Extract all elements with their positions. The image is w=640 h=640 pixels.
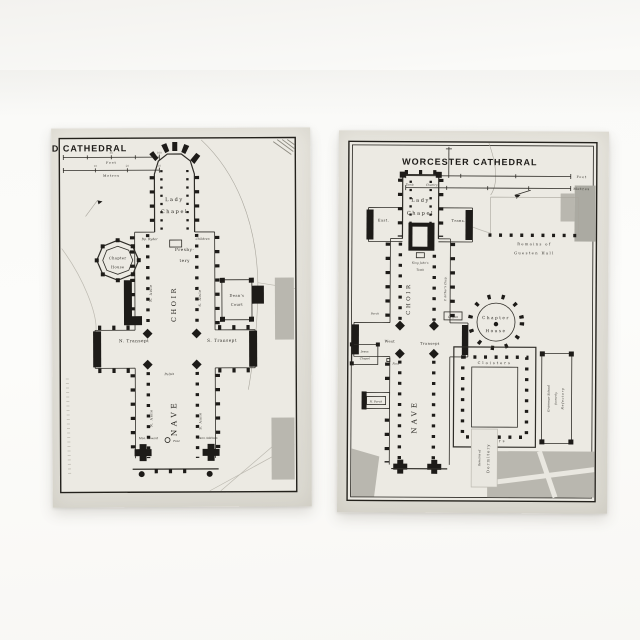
metre-tick: 30 xyxy=(158,164,162,168)
feet-tick: 100 xyxy=(157,151,162,155)
jesus-chapel-label: Jesus xyxy=(360,349,369,353)
lady-chapel-label: Lady xyxy=(411,198,430,204)
dormitory-label: Remains of xyxy=(477,449,481,467)
lady-chapel-label: Lady xyxy=(165,197,184,203)
deans-court-label: Dean's xyxy=(230,294,245,298)
feet-tick: 50 xyxy=(110,151,114,155)
pulpit-label: Pulpit xyxy=(163,372,174,376)
porch-label: Porch xyxy=(370,311,380,315)
metre-tick: 20 xyxy=(126,164,130,168)
prince-arthurs-chapel-label: P. Arthur's Chap. xyxy=(443,276,447,302)
guesten-hall-label: Guesten Hall xyxy=(514,251,555,255)
lichfield-print-sheet: LICHFIELD CATHEDRAL 50 100 Feet 10 20 30… xyxy=(51,127,312,507)
dormitory: Remains of Dormitory xyxy=(471,429,497,487)
lady-chapel-label: Chapel xyxy=(161,209,188,215)
jesus-chapel-label: Chapel xyxy=(360,356,370,360)
tomb-label: Tomb xyxy=(406,183,414,187)
chapter-house-label: Chapter xyxy=(109,256,127,260)
bp-ryder-monument-label: Bp. Ryder xyxy=(141,237,158,241)
deans-court-label: Court xyxy=(231,303,244,307)
chapter-house-label: House xyxy=(485,328,506,333)
nave-south-aisle-label: S. Aisle xyxy=(198,412,202,429)
nave-north-aisle-label: N. Aisle xyxy=(149,409,153,427)
cloisters-label: Cloisters xyxy=(478,361,512,365)
south-aisle-label: S. Aisle xyxy=(198,289,202,306)
nave-label: NAVE xyxy=(410,400,418,434)
feet-label: Feet xyxy=(576,175,587,179)
nave-label: NAVE xyxy=(169,400,178,437)
seward-monument-label: Mon. Seward xyxy=(138,436,158,440)
plan-title: WORCESTER CATHEDRAL xyxy=(402,157,537,168)
south-transept-label: S. Transept xyxy=(207,338,237,343)
high-altar xyxy=(408,223,434,251)
presbytery-label: Presby- xyxy=(175,247,195,252)
king-johns-tomb-label: King John's xyxy=(411,261,429,265)
feet-label: Feet xyxy=(106,161,117,165)
north-aisle-label: N. Aisle xyxy=(149,284,153,302)
chapter-house-label: Chapter xyxy=(482,315,510,320)
chapter-house-label: House xyxy=(111,265,125,269)
dormitory-label: Dormitory xyxy=(486,443,490,473)
north-porch-label: N. Porch xyxy=(369,399,383,403)
children-monument-label: Children xyxy=(196,237,210,241)
background-crease-shadow xyxy=(0,70,640,120)
photo-of-two-cathedral-plans: { "colors":{"background":"#fafaf8","pape… xyxy=(0,0,640,640)
north-transept-label: N. Transept xyxy=(119,338,150,343)
worcester-plan-svg: WORCESTER CATHEDRAL Feet Metres Remains … xyxy=(337,130,609,513)
choir-label: CHOIR xyxy=(170,286,178,322)
worcester-print-sheet: WORCESTER CATHEDRAL Feet Metres Remains … xyxy=(337,130,609,513)
grammar-school-label: Grammar School xyxy=(547,385,551,412)
king-johns-tomb-label: Tomb xyxy=(416,268,424,272)
dean-addison-monument-label: Dean Addison xyxy=(196,436,217,440)
guesten-hall-label: Remains of xyxy=(517,242,551,246)
presbytery-label: tery xyxy=(179,258,190,263)
lichfield-plan-svg: LICHFIELD CATHEDRAL 50 100 Feet 10 20 30… xyxy=(51,127,312,507)
refectory-label: Refectory xyxy=(561,387,565,410)
plan-title: LICHFIELD CATHEDRAL xyxy=(51,143,127,154)
metre-tick: 10 xyxy=(94,164,98,168)
metres-label: Metres xyxy=(103,174,120,178)
east-transept-label: Trans. xyxy=(452,219,466,223)
lady-chapel-label: Chapel xyxy=(407,211,434,217)
metres-label: Metres xyxy=(573,187,590,191)
east-transept-label: East. xyxy=(378,219,389,223)
west-transept-label: West xyxy=(385,340,396,344)
font-label: Font xyxy=(172,439,180,443)
west-transept-label: Transept xyxy=(420,342,440,346)
grammar-school-label: formerly xyxy=(554,392,558,406)
organ-label: Organ xyxy=(448,315,458,319)
chantry-label: Chantry xyxy=(426,183,438,187)
choir-label: CHOIR xyxy=(406,282,412,314)
